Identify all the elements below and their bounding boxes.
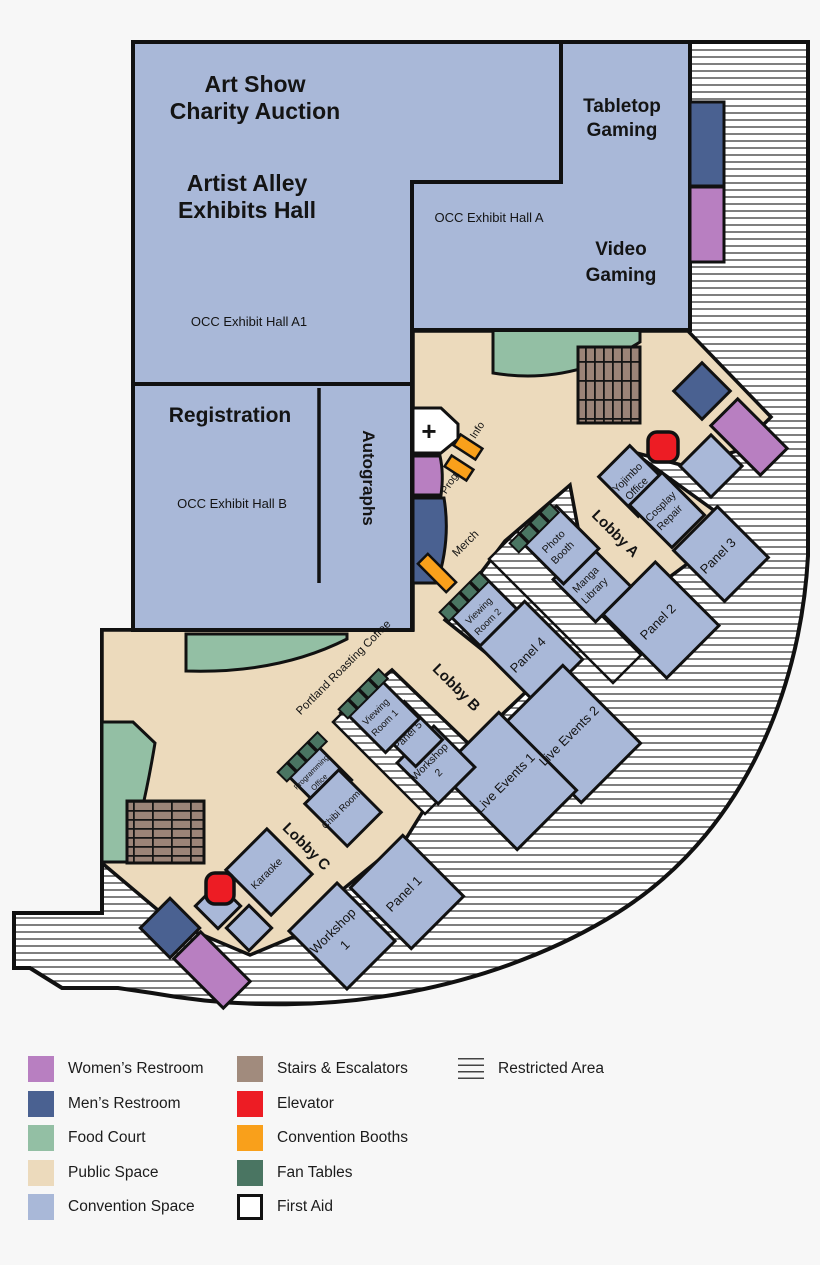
legend-item-food-court: Food Court — [28, 1125, 204, 1151]
legend-item-womens-restroom: Women’s Restroom — [28, 1056, 204, 1082]
legend-label: Restricted Area — [498, 1060, 604, 1078]
legend-item-stairs: Stairs & Escalators — [237, 1056, 408, 1082]
label-art-show-2: Charity Auction — [170, 98, 340, 124]
label-registration: Registration — [169, 404, 292, 427]
label-video-2: Gaming — [586, 265, 657, 286]
legend-item-first-aid: First Aid — [237, 1194, 408, 1220]
label-first-aid-cross: + — [421, 416, 436, 446]
legend-label: Stairs & Escalators — [277, 1060, 408, 1078]
food-court-swatch — [28, 1125, 54, 1151]
first-aid-swatch — [237, 1194, 263, 1220]
legend-label: Convention Booths — [277, 1129, 408, 1147]
label-tabletop-2: Gaming — [587, 120, 658, 141]
public-space-swatch — [28, 1160, 54, 1186]
legend-label: Public Space — [68, 1164, 158, 1182]
womens-restroom-topright — [690, 187, 724, 262]
legend-item-convention-booths: Convention Booths — [237, 1125, 408, 1151]
mens-restroom-swatch — [28, 1091, 54, 1117]
legend-label: Fan Tables — [277, 1164, 353, 1182]
label-occ-hall-b: OCC Exhibit Hall B — [177, 496, 287, 511]
legend-label: Elevator — [277, 1095, 334, 1113]
floor-plan-svg: Art Show Charity Auction Artist Alley Ex… — [0, 0, 820, 1060]
legend: Women’s Restroom Men’s Restroom Food Cou… — [0, 1056, 820, 1256]
label-artist-alley-1: Artist Alley — [187, 170, 308, 196]
stairs-top — [578, 347, 640, 423]
fan-tables-swatch — [237, 1160, 263, 1186]
stairs-swatch — [237, 1056, 263, 1082]
legend-label: Food Court — [68, 1129, 146, 1147]
legend-column-3: Restricted Area — [458, 1056, 604, 1091]
legend-item-elevator: Elevator — [237, 1091, 408, 1117]
stairs-left — [127, 801, 204, 863]
elevator-bottom — [206, 873, 234, 904]
legend-item-convention-space: Convention Space — [28, 1194, 204, 1220]
legend-label: Women’s Restroom — [68, 1060, 204, 1078]
womens-restroom-swatch — [28, 1056, 54, 1082]
label-video-1: Video — [595, 239, 646, 260]
legend-column-1: Women’s Restroom Men’s Restroom Food Cou… — [28, 1056, 204, 1229]
label-occ-hall-a1: OCC Exhibit Hall A1 — [191, 314, 307, 329]
legend-label: Convention Space — [68, 1198, 195, 1216]
convention-floor-map: Art Show Charity Auction Artist Alley Ex… — [0, 0, 820, 1265]
legend-item-mens-restroom: Men’s Restroom — [28, 1091, 204, 1117]
legend-item-public-space: Public Space — [28, 1160, 204, 1186]
legend-item-restricted-area: Restricted Area — [458, 1056, 604, 1082]
legend-label: Men’s Restroom — [68, 1095, 181, 1113]
legend-item-fan-tables: Fan Tables — [237, 1160, 408, 1186]
legend-label: First Aid — [277, 1198, 333, 1216]
label-art-show-1: Art Show — [205, 71, 306, 97]
label-autographs: Autographs — [359, 430, 378, 525]
legend-column-2: Stairs & Escalators Elevator Convention … — [237, 1056, 408, 1229]
restricted-area-swatch — [458, 1058, 484, 1080]
elevator-swatch — [237, 1091, 263, 1117]
convention-space-swatch — [28, 1194, 54, 1220]
label-artist-alley-2: Exhibits Hall — [178, 197, 316, 223]
convention-booths-swatch — [237, 1125, 263, 1151]
label-occ-hall-a: OCC Exhibit Hall A — [434, 210, 543, 225]
label-tabletop-1: Tabletop — [583, 96, 661, 117]
mens-restroom-topright — [690, 102, 724, 186]
elevator-top — [648, 432, 678, 462]
